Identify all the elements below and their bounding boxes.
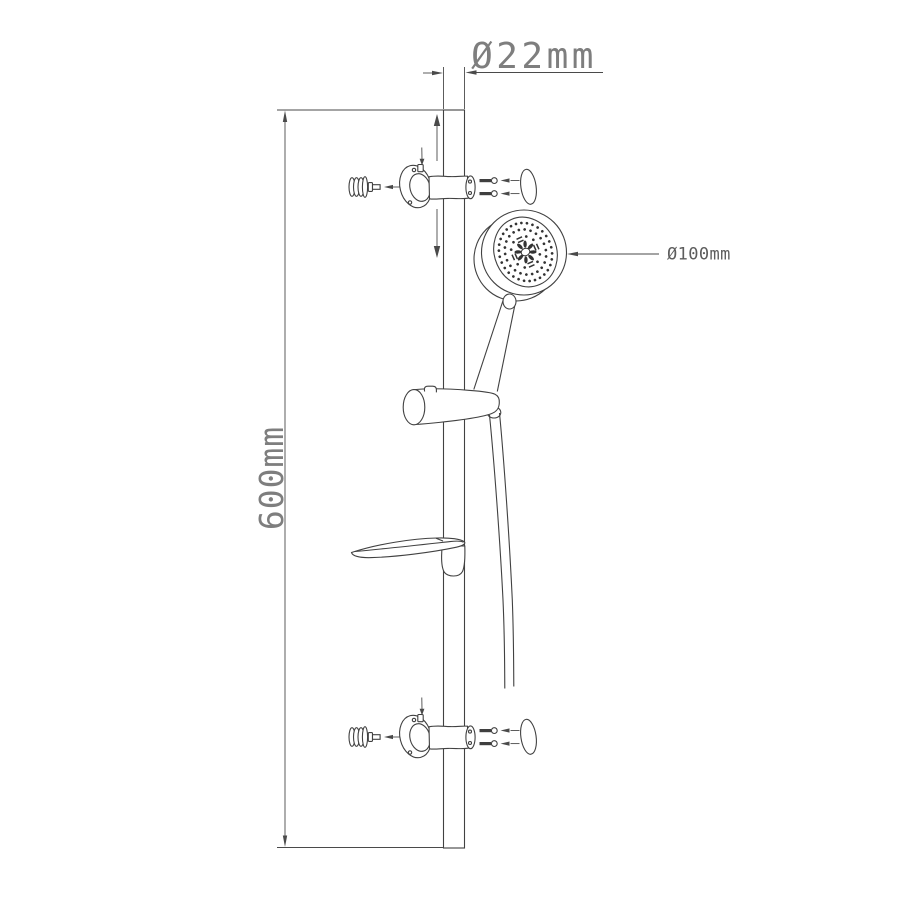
slider-holder [403, 386, 499, 425]
dimension-head-diameter: Ø100mm [567, 245, 731, 265]
shower-handle [474, 298, 517, 392]
shower-head [474, 207, 568, 309]
slide-down-arrow-icon [434, 209, 440, 258]
head-diameter-label: Ø100mm [667, 245, 731, 265]
drawing-svg: 600mm Ø22mm Ø100mm [0, 0, 900, 900]
slider-holder-body [413, 389, 499, 425]
rail-length-label: 600mm [252, 426, 291, 530]
shower-hose [487, 407, 514, 689]
soap-dish [352, 538, 465, 576]
dimension-rail-diameter: Ø22mm [423, 36, 603, 109]
handle-joint-icon [503, 294, 516, 309]
soap-dish-clamp [442, 546, 465, 576]
technical-drawing: 600mm Ø22mm Ø100mm [0, 0, 900, 900]
slider-lock-knob-icon [424, 386, 436, 392]
slider-holder-cap [403, 390, 425, 425]
slide-up-arrow-icon [434, 114, 440, 161]
rail-diameter-label: Ø22mm [471, 36, 597, 77]
